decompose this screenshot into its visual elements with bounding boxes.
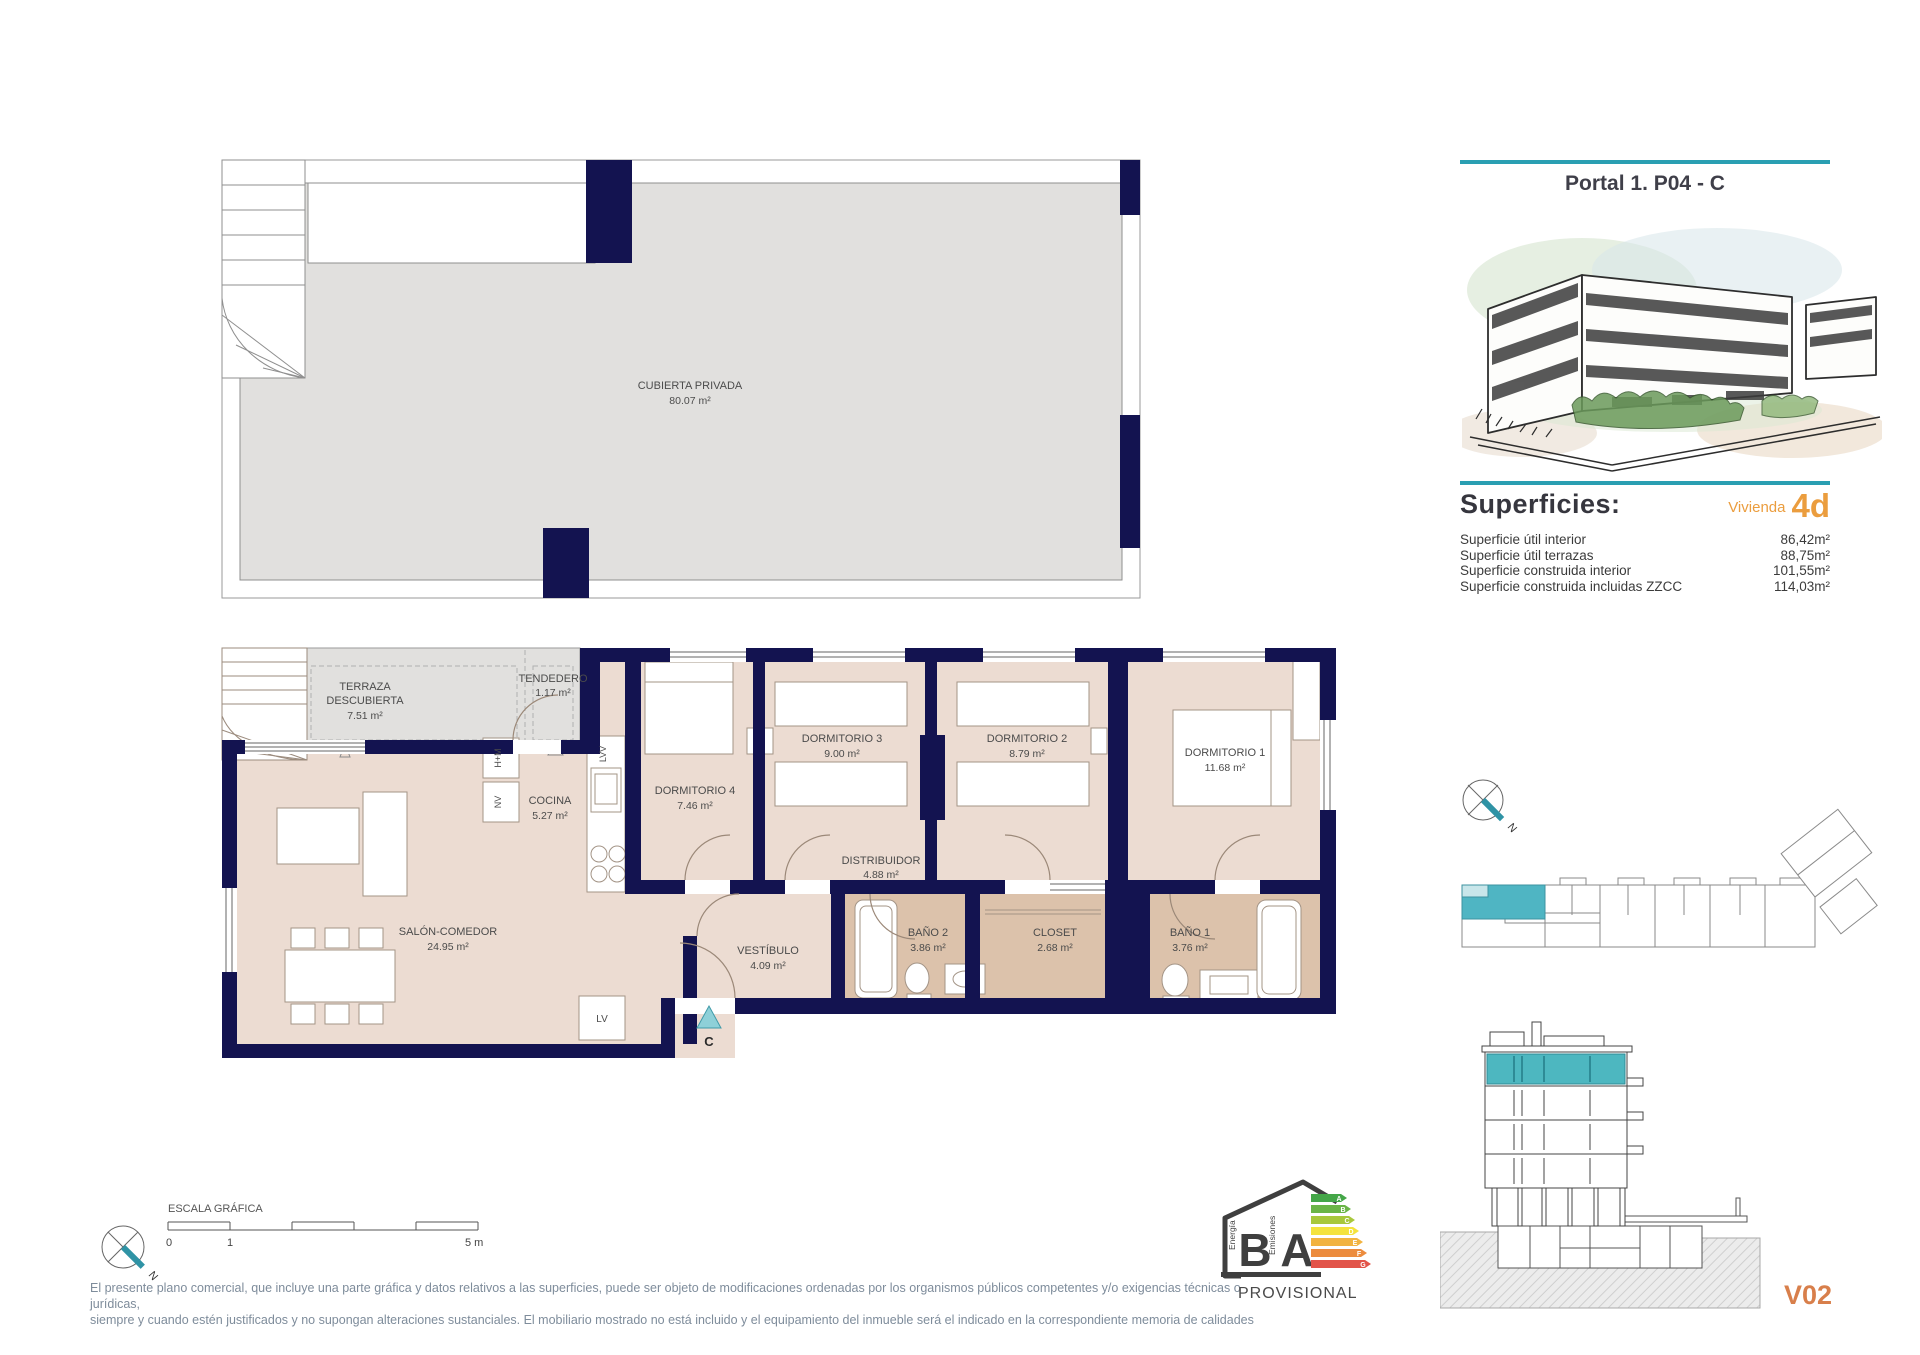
terraza-area: 7.51 m² bbox=[347, 710, 383, 722]
arrow-letter: A bbox=[1336, 1196, 1341, 1203]
energia-caption: Energía bbox=[1227, 1220, 1237, 1250]
section-unit-highlight bbox=[1487, 1054, 1625, 1084]
scale-tick-0: 0 bbox=[166, 1237, 172, 1249]
arrow-letter: E bbox=[1353, 1240, 1358, 1247]
page-title: Portal 1. P04 - C bbox=[1460, 172, 1830, 196]
superficies-header: Superficies: Vivienda 4d bbox=[1460, 489, 1830, 520]
superficies-row: Superficie útil interior 86,42m² bbox=[1460, 532, 1830, 548]
cocina-label: COCINA bbox=[529, 795, 572, 807]
sup-value: 88,75m² bbox=[1780, 548, 1830, 564]
roof-notch bbox=[308, 183, 595, 263]
dormitorio1-label: DORMITORIO 1 bbox=[1185, 747, 1265, 759]
compass-icon: N bbox=[1463, 780, 1519, 835]
energy-letter-a: A bbox=[1280, 1224, 1313, 1276]
roof-plan: CUBIERTA PRIVADA 80.07 m² bbox=[218, 155, 1148, 600]
closet-area: 2.68 m² bbox=[1037, 942, 1073, 954]
arrow-letter: G bbox=[1360, 1262, 1366, 1269]
arrow-letter: F bbox=[1357, 1251, 1362, 1258]
dormitorio4-label: DORMITORIO 4 bbox=[655, 785, 735, 797]
scale-bar bbox=[168, 1222, 478, 1230]
vestibulo-label: VESTÍBULO bbox=[737, 944, 799, 957]
distribuidor-area: 4.88 m² bbox=[863, 869, 899, 881]
nv-label: NV bbox=[493, 796, 503, 809]
dormitorio3-label: DORMITORIO 3 bbox=[802, 733, 882, 745]
disclaimer: El presente plano comercial, que incluye… bbox=[90, 1280, 1260, 1328]
bano2-label: BAÑO 2 bbox=[908, 926, 948, 939]
superficies-table: Superficie útil interior 86,42m² Superfi… bbox=[1460, 532, 1830, 594]
lv-label: LV bbox=[596, 1014, 608, 1025]
disclaimer-line2: siempre y cuando estén justificados y no… bbox=[90, 1312, 1260, 1328]
hm-label: H+M bbox=[493, 748, 503, 767]
distribuidor-label: DISTRIBUIDOR bbox=[842, 855, 921, 867]
roof-room-area: 80.07 m² bbox=[669, 395, 711, 407]
dormitorio2-area: 8.79 m² bbox=[1009, 748, 1045, 760]
site-building bbox=[1462, 809, 1877, 947]
sup-value: 114,03m² bbox=[1774, 579, 1830, 595]
energy-arrows: A B C D E F G bbox=[1311, 1194, 1371, 1269]
site-key-plan: N bbox=[1450, 775, 1890, 965]
dormitorio4-area: 7.46 m² bbox=[677, 800, 713, 812]
graphic-scale: ESCALA GRÁFICA 0 1 5 m bbox=[160, 1198, 500, 1258]
north-label: N bbox=[1505, 821, 1519, 835]
tendedero-area: 1.17 m² bbox=[535, 687, 571, 699]
sup-label: Superficie útil terrazas bbox=[1460, 548, 1594, 564]
roof-room-label: CUBIERTA PRIVADA bbox=[638, 380, 743, 392]
superficies-title: Superficies: bbox=[1460, 489, 1621, 520]
salon-area: 24.95 m² bbox=[427, 941, 469, 953]
sup-value: 101,55m² bbox=[1773, 563, 1830, 579]
superficies-row: Superficie útil terrazas 88,75m² bbox=[1460, 548, 1830, 564]
vivienda-code: 4d bbox=[1791, 492, 1830, 520]
sup-value: 86,42m² bbox=[1780, 532, 1830, 548]
lvv-label: LVV bbox=[598, 746, 608, 762]
superficies-rule bbox=[1460, 481, 1830, 485]
entrance-label: C bbox=[704, 1034, 714, 1049]
arrow-letter: D bbox=[1348, 1229, 1353, 1236]
emisiones-caption: Emisiones bbox=[1267, 1216, 1277, 1255]
arrow-a bbox=[1311, 1194, 1347, 1202]
superficies-row: Superficie construida incluidas ZZCC 114… bbox=[1460, 579, 1830, 595]
disclaimer-line1: El presente plano comercial, que incluye… bbox=[90, 1280, 1260, 1312]
bano2-area: 3.86 m² bbox=[910, 942, 946, 954]
plan-sheet: CUBIERTA PRIVADA 80.07 m² bbox=[0, 0, 1920, 1355]
sup-label: Superficie construida incluidas ZZCC bbox=[1460, 579, 1682, 595]
terraza-label2: DESCUBIERTA bbox=[326, 695, 404, 707]
sup-label: Superficie útil interior bbox=[1460, 532, 1586, 548]
scale-tick-1: 1 bbox=[227, 1237, 233, 1249]
bano1-area: 3.76 m² bbox=[1172, 942, 1208, 954]
provisional-label: PROVISIONAL bbox=[1238, 1285, 1357, 1303]
header-rule bbox=[1460, 160, 1830, 164]
salon-label: SALÓN-COMEDOR bbox=[399, 925, 497, 938]
scale-title: ESCALA GRÁFICA bbox=[168, 1202, 263, 1215]
terraza-label1: TERRAZA bbox=[339, 681, 391, 693]
section-tower bbox=[1482, 1022, 1643, 1226]
tendedero-label: TENDEDERO bbox=[518, 673, 588, 685]
superficies-row: Superficie construida interior 101,55m² bbox=[1460, 563, 1830, 579]
arrow-letter: B bbox=[1340, 1207, 1345, 1214]
cocina-area: 5.27 m² bbox=[532, 810, 568, 822]
vestibulo-area: 4.09 m² bbox=[750, 960, 786, 972]
roof-stair-icon bbox=[222, 160, 305, 378]
scale-tick-5: 5 m bbox=[465, 1237, 483, 1249]
energy-rating-logo: B A Energía Emisiones A B C D E F G bbox=[1215, 1178, 1380, 1283]
arrow-letter: C bbox=[1344, 1218, 1349, 1225]
closet-label: CLOSET bbox=[1033, 927, 1077, 939]
building-illustration bbox=[1462, 205, 1882, 480]
sup-label: Superficie construida interior bbox=[1460, 563, 1631, 579]
version-label: V02 bbox=[1752, 1280, 1832, 1311]
dormitorio3-area: 9.00 m² bbox=[824, 748, 860, 760]
building-section bbox=[1440, 1020, 1770, 1310]
dormitorio2-label: DORMITORIO 2 bbox=[987, 733, 1067, 745]
bano1-label: BAÑO 1 bbox=[1170, 926, 1210, 939]
site-unit-highlight bbox=[1462, 885, 1545, 919]
floor-plan: TERRAZA DESCUBIERTA 7.51 m² TENDEDERO 1.… bbox=[215, 640, 1345, 1080]
dormitorio1-area: 11.68 m² bbox=[1205, 762, 1246, 774]
vivienda-label: Vivienda bbox=[1728, 499, 1785, 520]
